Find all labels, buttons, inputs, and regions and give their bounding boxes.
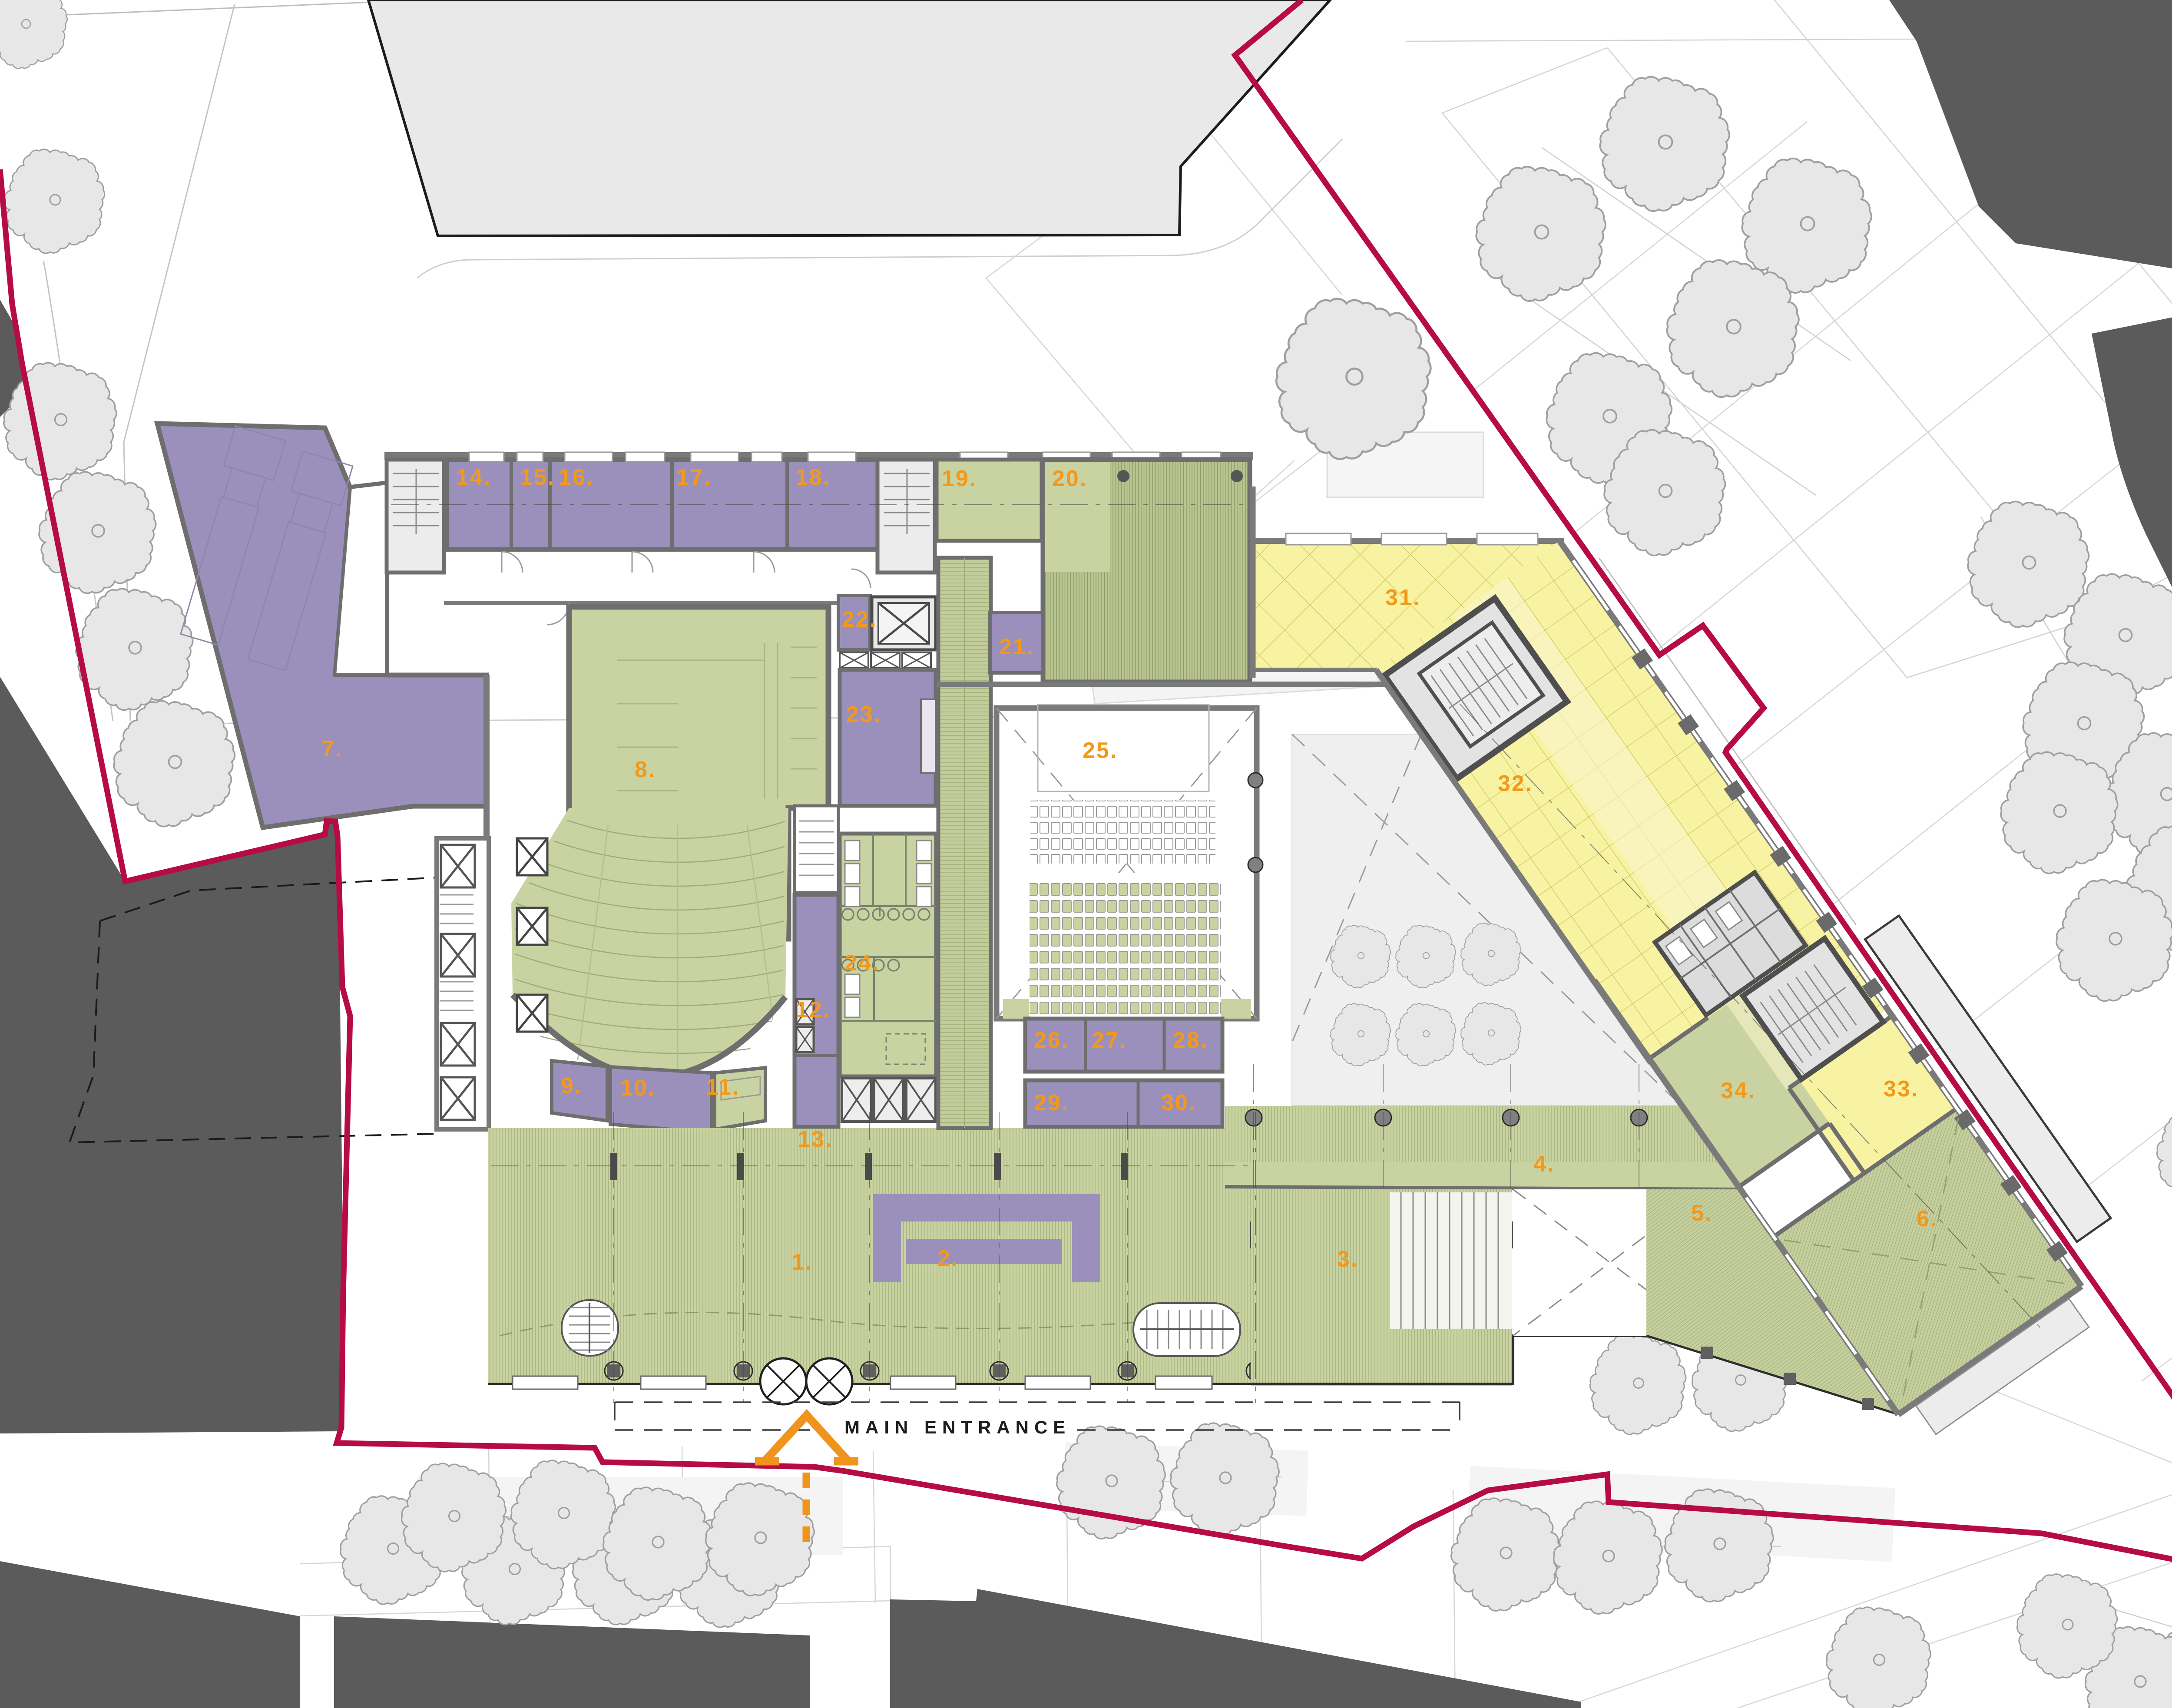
svg-text:13.: 13. — [798, 1127, 833, 1152]
svg-text:27.: 27. — [1092, 1028, 1127, 1053]
svg-text:22.: 22. — [842, 607, 877, 632]
svg-text:31.: 31. — [1385, 585, 1420, 610]
svg-text:15.: 15. — [520, 465, 555, 490]
svg-text:26.: 26. — [1034, 1028, 1069, 1053]
svg-text:24.: 24. — [844, 950, 880, 976]
svg-text:33.: 33. — [1884, 1076, 1919, 1102]
svg-text:21.: 21. — [999, 634, 1034, 659]
svg-text:MAIN ENTRANCE: MAIN ENTRANCE — [844, 1417, 1071, 1437]
svg-text:7.: 7. — [321, 736, 343, 761]
svg-text:18.: 18. — [795, 465, 831, 490]
svg-text:14.: 14. — [456, 465, 491, 490]
svg-text:4.: 4. — [1533, 1152, 1555, 1177]
svg-text:1.: 1. — [791, 1250, 813, 1275]
svg-text:17.: 17. — [676, 465, 712, 490]
svg-text:6.: 6. — [1917, 1206, 1938, 1231]
svg-text:20.: 20. — [1052, 466, 1087, 491]
svg-text:9.: 9. — [561, 1073, 582, 1099]
svg-text:25.: 25. — [1083, 738, 1118, 763]
svg-text:32.: 32. — [1498, 771, 1533, 796]
svg-text:16.: 16. — [559, 465, 594, 490]
svg-text:5.: 5. — [1691, 1201, 1712, 1226]
svg-text:11.: 11. — [706, 1075, 740, 1100]
svg-text:12.: 12. — [795, 997, 831, 1023]
svg-text:2.: 2. — [937, 1246, 959, 1271]
svg-text:34.: 34. — [1721, 1078, 1756, 1103]
svg-text:29.: 29. — [1034, 1090, 1069, 1115]
svg-text:10.: 10. — [620, 1076, 656, 1101]
svg-text:30.: 30. — [1161, 1090, 1196, 1115]
svg-text:3.: 3. — [1337, 1247, 1358, 1272]
svg-text:23.: 23. — [846, 702, 881, 727]
svg-text:8.: 8. — [635, 757, 656, 782]
svg-text:19.: 19. — [942, 466, 977, 491]
svg-text:28.: 28. — [1173, 1028, 1208, 1053]
